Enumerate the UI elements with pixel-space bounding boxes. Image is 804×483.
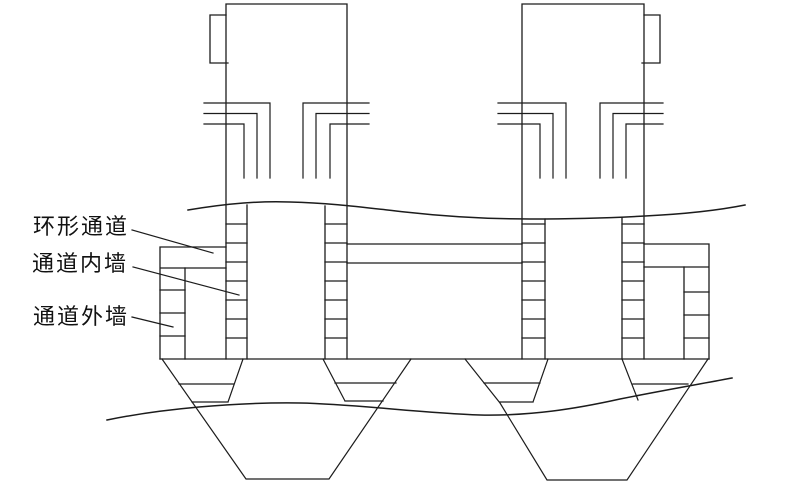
right-outer-wall (644, 244, 709, 359)
left-outer-wall-cap (160, 247, 226, 359)
left-pylon-inner-wall-right (325, 206, 347, 359)
right-pylon-outline (522, 4, 644, 359)
left-pylon-top-tab (210, 15, 228, 63)
mid-left-funnel-steps (323, 359, 396, 401)
leader-annular-channel (132, 230, 213, 253)
diagram-canvas: 环形通道 通道内墙 通道外墙 (0, 0, 804, 483)
right-pit (465, 359, 708, 480)
right-funnel-steps (622, 359, 688, 400)
left-outer-wall-courses (160, 290, 185, 336)
leader-inner-wall (133, 267, 239, 295)
right-outer-wall-cap (644, 244, 709, 359)
left-pylon-inner-wall-left (226, 205, 247, 359)
left-outer-wall (160, 247, 226, 359)
annotations: 环形通道 通道内墙 通道外墙 (32, 214, 239, 329)
right-pylon-top-tab (642, 15, 660, 63)
middle-channel-cap-lines (347, 244, 522, 263)
right-pylon-inner-wall-right (622, 218, 644, 359)
right-pylon-inner-wall-left (522, 219, 545, 359)
label-outer-wall: 通道外墙 (33, 304, 129, 329)
right-pylon (498, 4, 663, 359)
caisson-cross-section-diagram: 环形通道 通道内墙 通道外墙 (0, 0, 804, 483)
upper-ground-line (188, 202, 745, 219)
left-pylon-rebar (204, 103, 369, 178)
label-annular-channel: 环形通道 (33, 214, 129, 239)
right-pylon-rebar (498, 103, 663, 178)
leader-outer-wall (132, 317, 173, 327)
left-pylon-outline (226, 4, 347, 359)
right-outer-wall-courses (684, 292, 709, 338)
left-funnel-steps (179, 359, 243, 402)
label-inner-wall: 通道内墙 (32, 251, 128, 276)
left-pylon (204, 4, 369, 359)
left-pit (162, 359, 411, 479)
excavation-profile (162, 359, 708, 480)
